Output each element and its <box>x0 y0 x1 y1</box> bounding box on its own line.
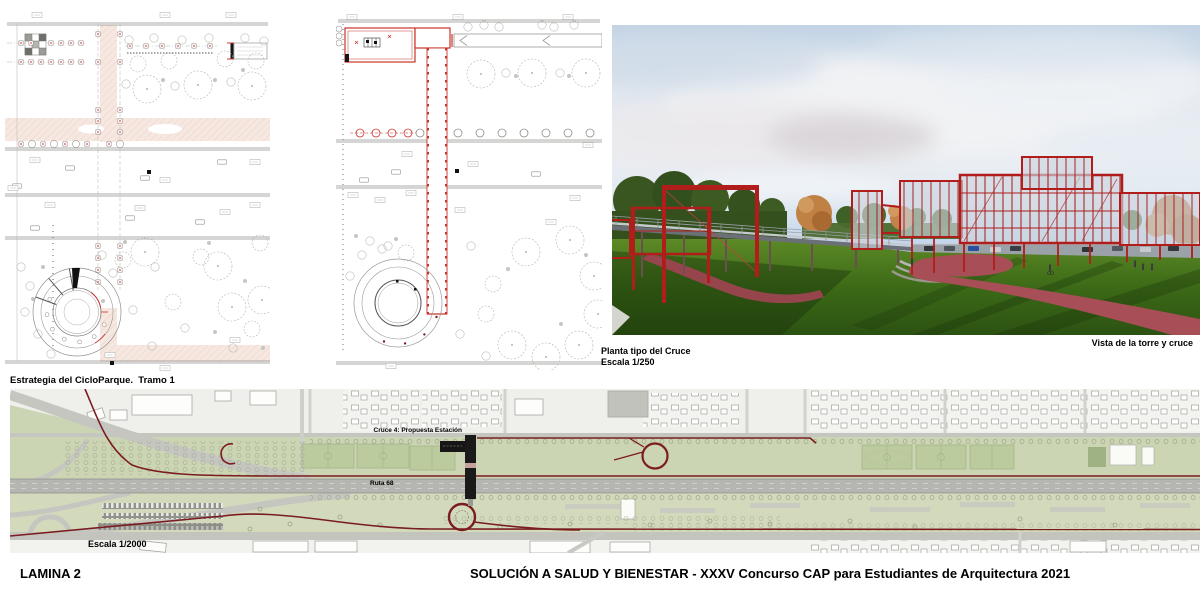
plan-b-bridge-arrow <box>452 34 602 47</box>
footer-title: SOLUCIÓN A SALUD Y BIENESTAR - XXXV Conc… <box>470 566 1070 581</box>
map-label-station: Cruce 4: Propuesta Estación <box>374 427 463 434</box>
site-map-drawing: Cruce 4: Propuesta Estación Ruta 68 Esca… <box>10 389 1200 553</box>
presentation-board: Estrategia del CicloParque. Tramo 1 <box>0 0 1200 600</box>
plan-b-colonnade <box>350 129 594 137</box>
map-lower-road-and-buildings <box>10 532 1200 553</box>
render-caption: Vista de la torre y cruce <box>1092 338 1193 348</box>
plan-a-pink-paths <box>5 25 270 362</box>
plan-tramo1-drawing <box>5 10 270 373</box>
plan-cruce-caption-scale: Escala 1/250 <box>601 357 691 368</box>
plan-tramo1-caption: Estrategia del CicloParque. Tramo 1 <box>10 375 175 386</box>
plan-a-stair-detail <box>227 43 267 59</box>
plan-a-road-lines <box>5 23 270 363</box>
render-photo <box>612 25 1200 335</box>
plan-b-road-lines <box>336 20 602 364</box>
map-label-route: Ruta 68 <box>370 480 394 487</box>
plan-cruce-caption-title: Planta tipo del Cruce <box>601 346 691 357</box>
plan-a-building-cluster <box>25 34 46 55</box>
map-label-scale: Escala 1/2000 <box>88 539 147 549</box>
plan-cruce-caption: Planta tipo del Cruce Escala 1/250 <box>601 346 691 368</box>
sheet-label: LAMINA 2 <box>20 566 81 581</box>
map-highway <box>10 479 1200 493</box>
plan-b-cars-and-marks <box>347 15 593 369</box>
plan-cruce-drawing <box>336 14 602 370</box>
